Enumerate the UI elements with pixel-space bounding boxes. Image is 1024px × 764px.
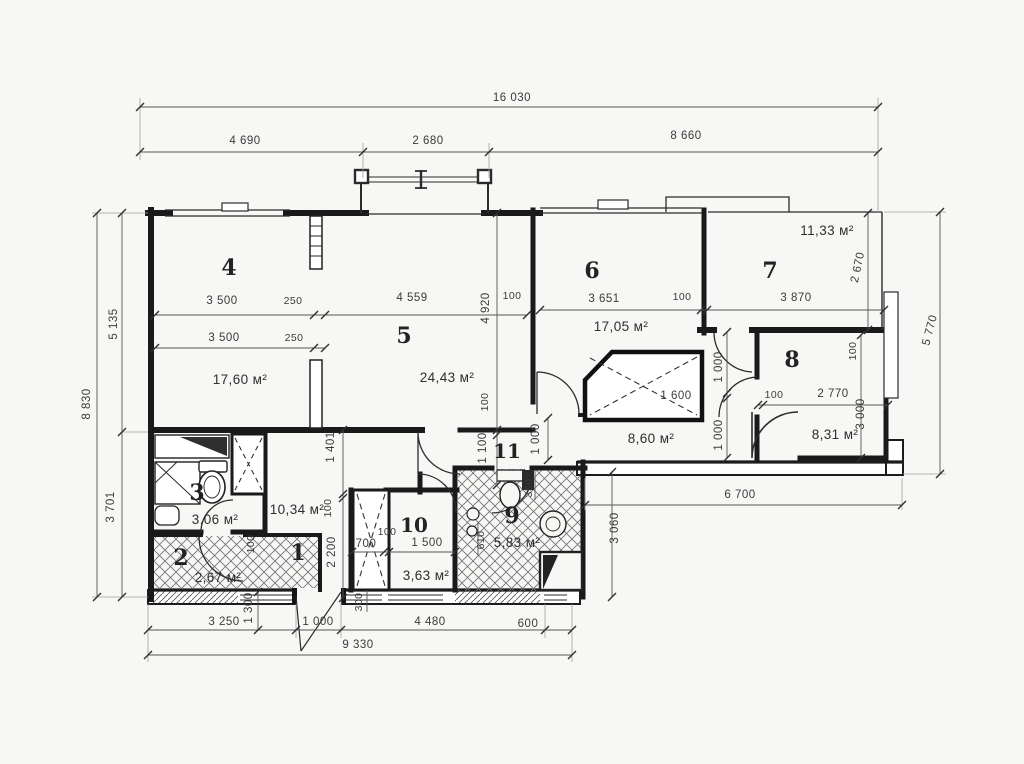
dim-left-seg1: 5 135 [108,308,120,339]
dim-niche: 300 [353,593,365,612]
room-5-area: 24,43 м² [420,370,475,385]
dim-bottom-seg3: 4 480 [414,616,445,628]
dim-room6-width: 3 651 [588,293,619,305]
dim-top-total: 16 030 [493,92,531,104]
dim-room9-a: 610 [475,531,487,550]
room-6-number: 6 [584,258,599,284]
room-8-number: 8 [784,347,799,373]
dim-closet-width: 1 600 [660,390,691,402]
dim-shaft-width: 700 [356,538,377,550]
dim-bottom-seg2: 1 000 [302,616,333,628]
room-11-area: 8,60 м² [628,431,675,446]
dim-hall-door: 100 [245,535,257,554]
dim-top-seg2: 2 680 [412,135,443,147]
dim-wall-250: 250 [284,295,303,307]
dim-corridor-height: 1 100 [477,432,489,463]
room-1-number: 1 [290,540,305,566]
dim-shaft-wall: 100 [378,526,397,538]
room-9-area: 5,83 м² [494,535,541,550]
room-7-area: 11,33 м² [800,223,854,238]
room-4-number: 4 [221,255,236,281]
dim-left-total: 8 830 [81,388,93,419]
dim-bottom-seg4: 600 [518,618,539,630]
dim-room4-width: 3 500 [206,295,237,307]
room-6-area: 17,05 м² [594,319,649,334]
room-10-number: 10 [400,513,428,537]
room-4-area: 17,60 м² [213,372,268,387]
dim-top-seg1: 4 690 [229,135,260,147]
dim-room8-height: 3 000 [855,398,867,429]
room-9-number: 9 [504,503,519,529]
dim-wall-100a: 100 [503,290,522,302]
dim-corridor-b: 1 000 [530,423,542,454]
room-3-area: 3,06 м² [192,512,239,527]
dim-wall-100b: 100 [479,393,491,412]
closet [585,352,702,420]
dim-room9-door: 350 [523,479,535,498]
room-10-area: 3,63 м² [403,568,450,583]
dim-room8-w100: 100 [765,389,784,401]
dim-wall-100c: 100 [673,291,692,303]
dim-room5-height: 4 920 [480,292,492,323]
dim-right-wing: 6 700 [724,489,755,501]
room-2-area: 2,67 м² [195,570,242,585]
room-2-number: 2 [173,545,188,571]
scanned-floor-plan: 16 030 4 690 2 680 8 660 8 830 5 135 3 7… [0,0,1024,764]
dim-entry-offset: 1 300 [243,592,255,623]
dim-room10-width: 1 500 [411,537,442,549]
dim-hall-a: 1 401 [325,431,337,462]
room-3-number: 3 [189,480,204,506]
dim-wall-250b: 250 [285,332,304,344]
dim-bottom-total: 9 330 [342,639,373,651]
dim-hall-b: 2 200 [326,536,338,567]
room-7-number: 7 [762,258,777,284]
dim-room5-width: 4 559 [396,292,427,304]
dim-room8-wall: 100 [847,342,859,361]
dim-right-depth: 3 060 [609,512,621,543]
room-11-number: 11 [493,439,521,463]
floor-plan-svg: 16 030 4 690 2 680 8 660 8 830 5 135 3 7… [0,0,1024,764]
room-8-area: 8,31 м² [812,427,859,442]
dim-room4-width2: 3 500 [208,332,239,344]
dim-bottom-seg1: 3 250 [208,616,239,628]
dim-room7-width: 3 870 [780,292,811,304]
dim-left-seg2: 3 701 [105,491,117,522]
dim-vestibule-a: 1 000 [713,351,725,382]
dim-vestibule-b: 1 000 [713,419,725,450]
room-5-number: 5 [396,323,411,349]
room-1-area: 10,34 м² [270,502,325,517]
dim-room8-width: 2 770 [817,388,848,400]
dim-top-seg3: 8 660 [670,130,701,142]
